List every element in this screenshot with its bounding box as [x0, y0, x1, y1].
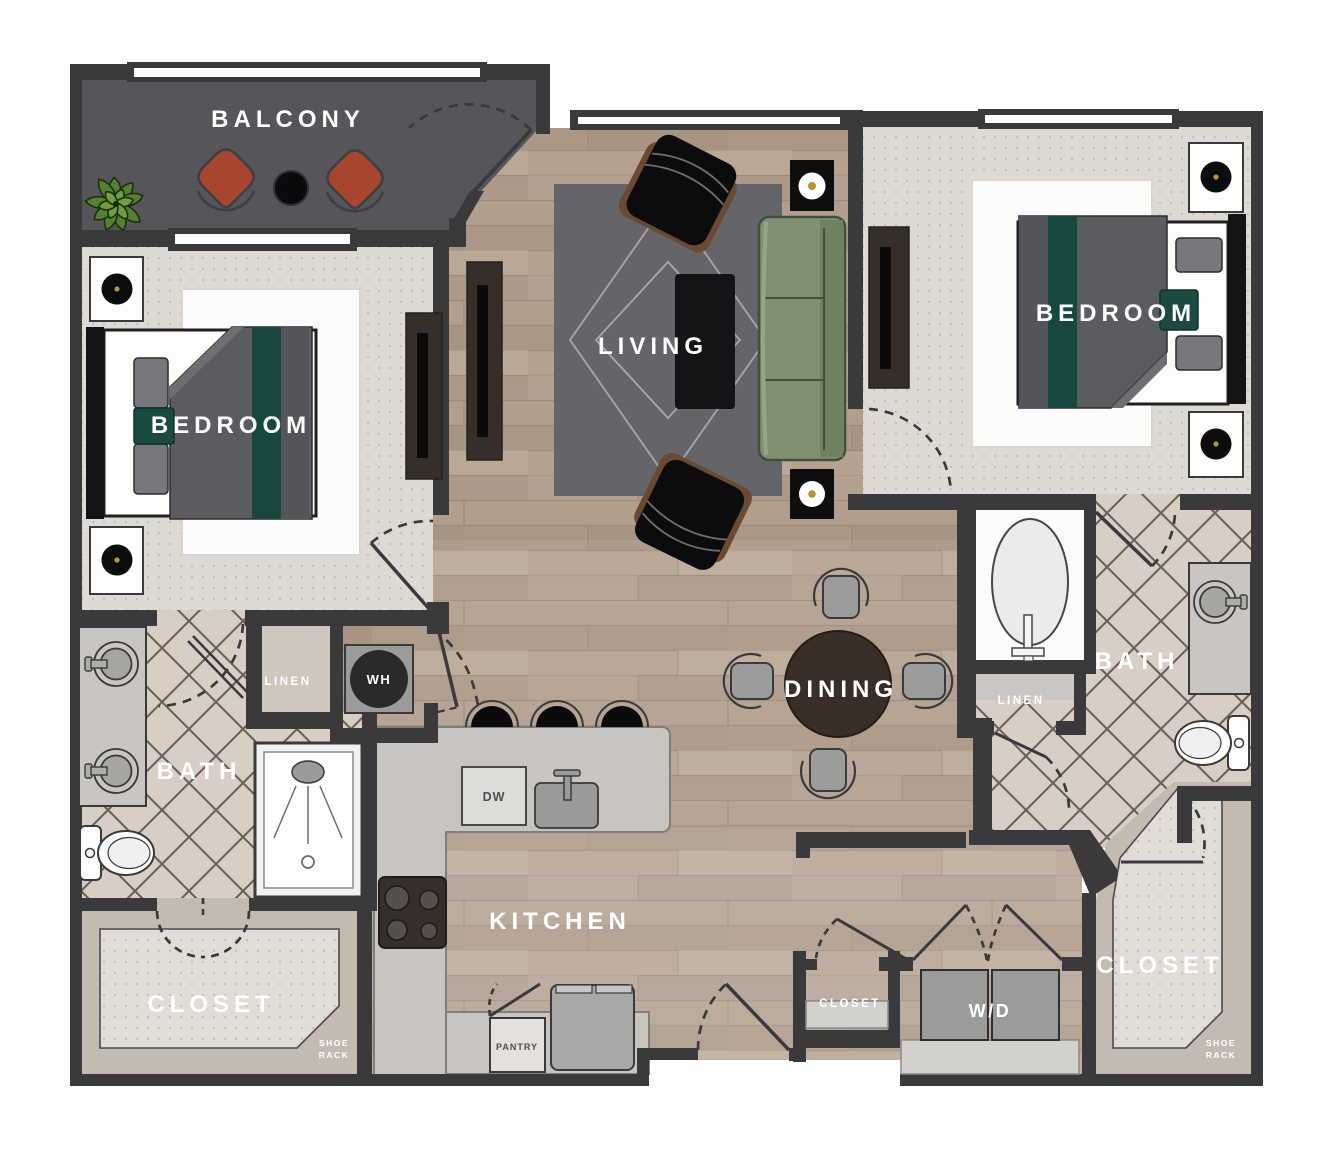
svg-text:SHOE: SHOE — [1206, 1038, 1236, 1048]
svg-text:RACK: RACK — [319, 1050, 350, 1060]
svg-text:RACK: RACK — [1206, 1050, 1237, 1060]
svg-text:LINEN: LINEN — [998, 695, 1045, 707]
svg-text:BEDROOM: BEDROOM — [1036, 300, 1196, 327]
svg-text:CLOSET: CLOSET — [819, 998, 881, 1010]
svg-text:PANTRY: PANTRY — [496, 1042, 538, 1052]
svg-text:CLOSET: CLOSET — [147, 991, 274, 1018]
svg-text:DW: DW — [483, 790, 506, 804]
svg-text:W/D: W/D — [969, 1001, 1012, 1021]
svg-text:LIVING: LIVING — [598, 333, 708, 360]
svg-text:WH: WH — [367, 672, 392, 687]
svg-text:CLOSET: CLOSET — [1096, 952, 1223, 979]
svg-text:BATH: BATH — [1095, 648, 1180, 675]
svg-text:BEDROOM: BEDROOM — [151, 412, 311, 439]
svg-text:BATH: BATH — [157, 758, 242, 785]
svg-text:DINING: DINING — [784, 676, 898, 703]
svg-text:KITCHEN: KITCHEN — [489, 908, 631, 935]
svg-text:BALCONY: BALCONY — [211, 106, 365, 133]
svg-text:SHOE: SHOE — [319, 1038, 349, 1048]
svg-text:LINEN: LINEN — [265, 676, 312, 688]
